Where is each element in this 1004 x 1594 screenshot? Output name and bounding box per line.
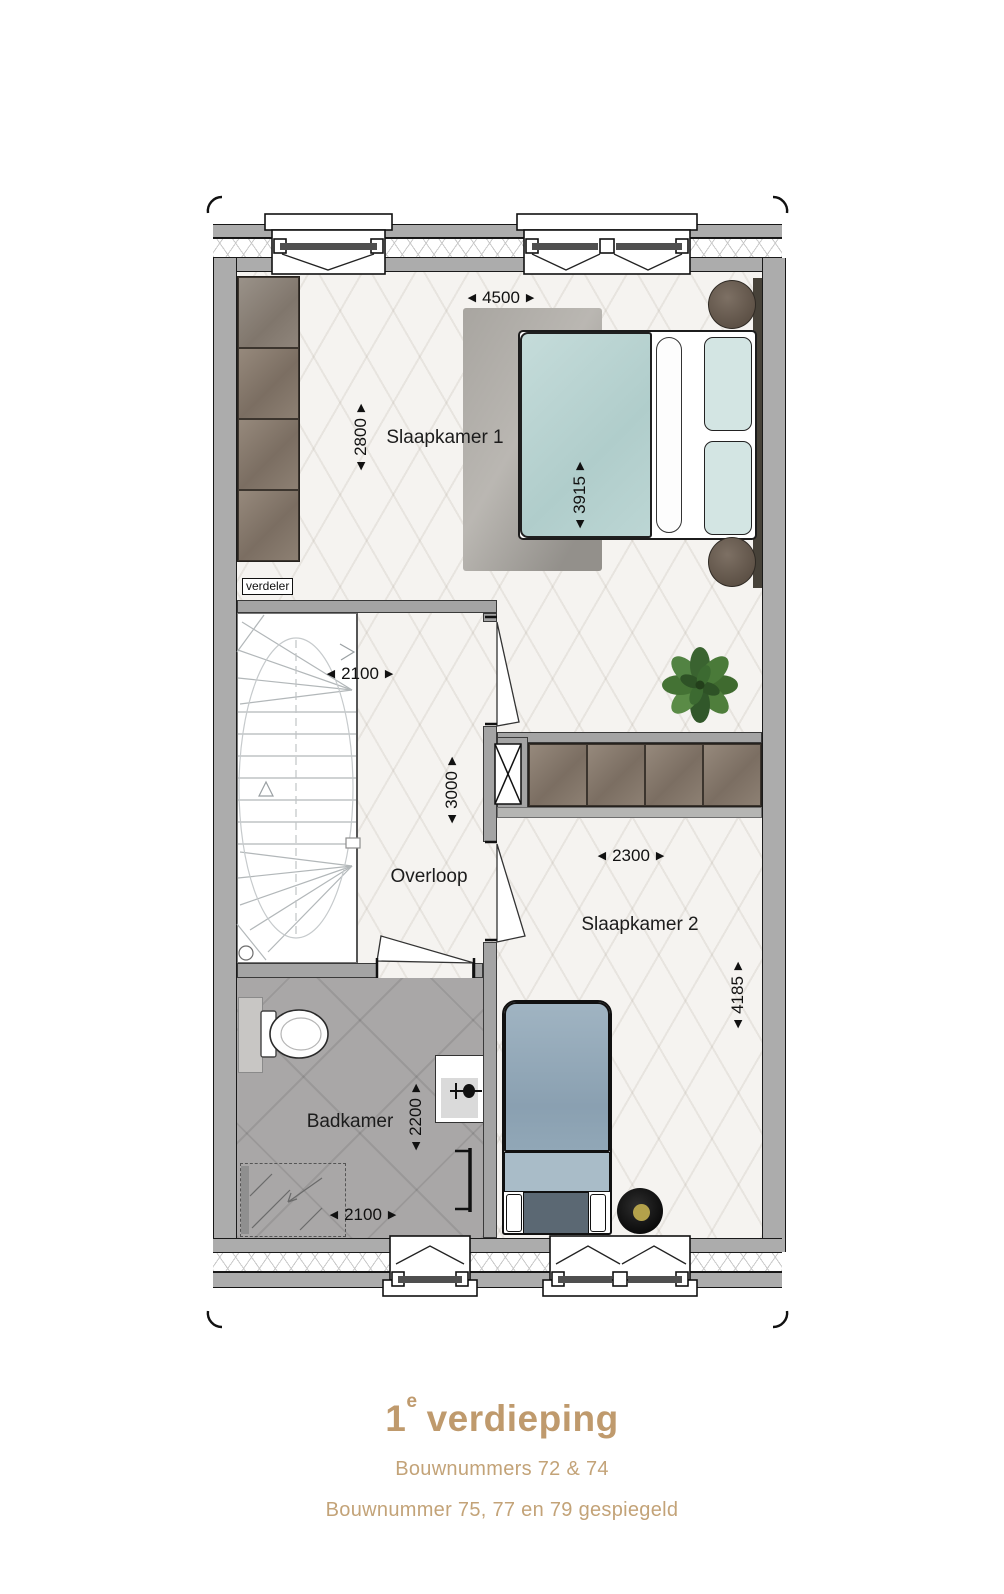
wall [483, 942, 497, 1238]
dimension-value: 2300 [612, 846, 650, 866]
shower-drain [241, 1166, 249, 1234]
nightstand [708, 537, 756, 587]
wardrobe-slaapkamer1 [237, 276, 300, 562]
dimension-value: 2100 [344, 1205, 382, 1225]
wardrobe-segment [645, 744, 703, 806]
floor-word: verdieping [427, 1398, 619, 1439]
dimension-value: 3000 [442, 771, 462, 809]
insulation-hatch [213, 1252, 782, 1272]
dimension-bed1-lengte: ◀3915▶ [570, 462, 590, 529]
dimension-value: 4500 [482, 288, 520, 308]
toilet-cistern [238, 997, 263, 1073]
single-bed-base [523, 1192, 589, 1234]
room-label-slaapkamer1: Slaapkamer 1 [386, 427, 503, 449]
exterior-wall [213, 1272, 782, 1288]
floorplan-page: Slaapkamer 1 Slaapkamer 2 Overloop Badka… [0, 0, 1004, 1594]
exterior-wall [762, 258, 786, 1252]
dim-arrow-right-icon: ▶ [411, 1084, 422, 1092]
wall [472, 963, 483, 978]
pillow [704, 441, 752, 535]
wall [497, 732, 762, 743]
double-bed-blanket-roll [656, 337, 682, 533]
room-label-overloop: Overloop [390, 866, 467, 888]
dim-arrow-left-icon: ◀ [575, 520, 586, 528]
dim-arrow-left-icon: ◀ [327, 669, 335, 680]
wall [237, 600, 497, 613]
caption-block: 1everdieping Bouwnummers 72 & 74 Bouwnum… [0, 1398, 1004, 1522]
dimension-value: 2100 [341, 664, 379, 684]
dimension-slaapkamer2-diepte: ◀4185▶ [728, 962, 748, 1029]
shaft-wall [497, 737, 528, 815]
dimension-slaapkamer2-breedte: ◀2300▶ [598, 846, 665, 866]
dimension-slaapkamer1-diepte: ◀2800▶ [351, 404, 371, 471]
exterior-wall [213, 1238, 782, 1252]
room-label-slaapkamer2: Slaapkamer 2 [581, 914, 698, 936]
wardrobe-segment [587, 744, 645, 806]
dim-arrow-right-icon: ▶ [385, 669, 393, 680]
dim-arrow-right-icon: ▶ [356, 404, 367, 412]
exterior-wall [213, 224, 782, 238]
dimension-value: 2200 [406, 1098, 426, 1136]
single-bed-duvet [504, 1002, 610, 1152]
bed-post [506, 1194, 522, 1232]
dim-arrow-left-icon: ◀ [598, 851, 606, 862]
dim-arrow-left-icon: ◀ [356, 462, 367, 470]
subtitle-bouwnummers: Bouwnummers 72 & 74 [0, 1458, 1004, 1481]
dimension-overloop-diepte: ◀3000▶ [442, 757, 462, 824]
wardrobe-segment [529, 744, 587, 806]
wall [237, 963, 377, 978]
bed-post [590, 1194, 606, 1232]
dim-arrow-left-icon: ◀ [330, 1210, 338, 1221]
wall [483, 726, 497, 842]
wardrobe-plinth [497, 807, 762, 818]
verdeler-label: verdeler [242, 578, 293, 595]
sink-basin [441, 1078, 478, 1118]
dim-arrow-right-icon: ▶ [526, 293, 534, 304]
wardrobe-segment [238, 419, 299, 490]
wardrobe-segment [238, 277, 299, 348]
floor-number: 1 [385, 1398, 406, 1439]
dimension-value: 3915 [570, 476, 590, 514]
dimension-value: 4185 [728, 976, 748, 1014]
page-title: 1everdieping [0, 1398, 1004, 1440]
pouf-center [633, 1204, 650, 1221]
subtitle-gespiegeld: Bouwnummer 75, 77 en 79 gespiegeld [0, 1499, 1004, 1522]
pillow [704, 337, 752, 431]
dimension-badkamer-breedte: ◀2100▶ [330, 1205, 397, 1225]
exterior-wall [213, 258, 237, 1252]
insulation-hatch [213, 238, 782, 258]
shower [240, 1163, 346, 1237]
floor-ordinal: e [406, 1391, 417, 1412]
dim-arrow-left-icon: ◀ [411, 1142, 422, 1150]
dimension-trap-breedte: ◀2100▶ [327, 664, 394, 684]
dim-arrow-right-icon: ▶ [447, 757, 458, 765]
dimension-badkamer-diepte: ◀2200▶ [406, 1084, 426, 1151]
dim-arrow-right-icon: ▶ [656, 851, 664, 862]
wardrobe-slaapkamer2 [528, 743, 762, 807]
wardrobe-segment [238, 348, 299, 419]
dim-arrow-right-icon: ▶ [733, 962, 744, 970]
dim-arrow-left-icon: ◀ [733, 1020, 744, 1028]
wardrobe-segment [703, 744, 761, 806]
wardrobe-segment [238, 490, 299, 561]
dim-arrow-left-icon: ◀ [468, 293, 476, 304]
dim-arrow-right-icon: ▶ [388, 1210, 396, 1221]
dim-arrow-right-icon: ▶ [575, 462, 586, 470]
dimension-value: 2800 [351, 418, 371, 456]
dim-arrow-left-icon: ◀ [447, 815, 458, 823]
dimension-slaapkamer1-breedte: ◀4500▶ [468, 288, 535, 308]
single-bed-fold [504, 1152, 610, 1192]
nightstand [708, 280, 756, 329]
room-label-badkamer: Badkamer [307, 1111, 394, 1133]
exterior-wall [213, 258, 782, 272]
wall [483, 613, 497, 622]
